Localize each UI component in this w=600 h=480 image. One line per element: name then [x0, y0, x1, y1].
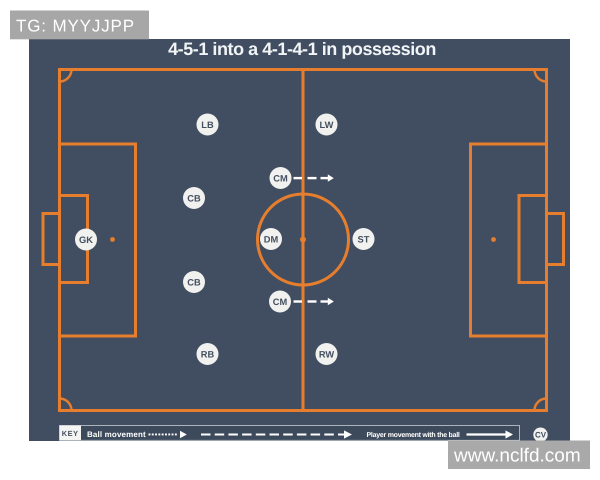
svg-text:TG: MYYJJPP: TG: MYYJJPP [16, 16, 135, 35]
svg-text:Player movement with the ball: Player movement with the ball [367, 431, 460, 439]
svg-text:www.nclfd.com: www.nclfd.com [453, 446, 581, 467]
svg-text:Ball movement: Ball movement [87, 430, 146, 439]
svg-text:RB: RB [201, 350, 215, 360]
svg-text:LW: LW [320, 120, 334, 130]
svg-text:4-5-1 into a 4-1-4-1 in posses: 4-5-1 into a 4-1-4-1 in possession [168, 39, 436, 59]
svg-text:LB: LB [201, 120, 214, 130]
svg-text:CM: CM [273, 174, 288, 184]
svg-text:KEY: KEY [62, 429, 79, 438]
svg-text:CB: CB [187, 194, 201, 204]
svg-text:DM: DM [264, 235, 279, 245]
svg-text:GK: GK [79, 235, 93, 245]
svg-text:RW: RW [319, 350, 335, 360]
svg-text:CV: CV [535, 431, 547, 440]
svg-text:CM: CM [273, 297, 288, 307]
svg-text:ST: ST [358, 235, 370, 245]
svg-text:CB: CB [187, 278, 201, 288]
